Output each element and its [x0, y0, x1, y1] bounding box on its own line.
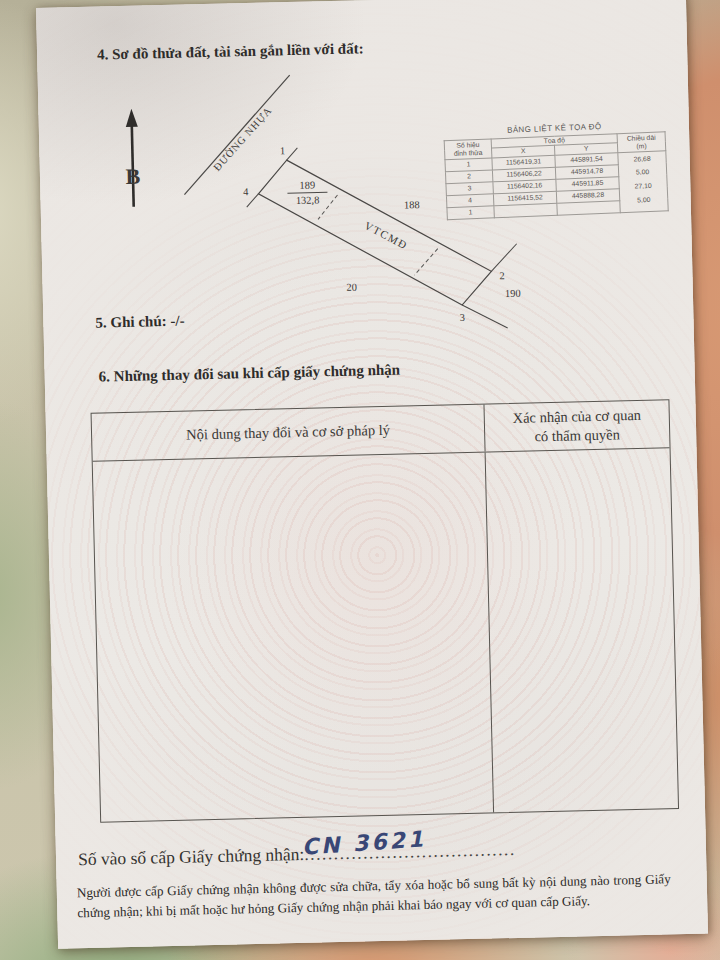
edge-length: 5,00	[620, 195, 667, 205]
vertex-3-label: 3	[460, 312, 466, 323]
vertex-id: 1	[447, 206, 494, 220]
edge-length: 26,68	[618, 154, 665, 164]
parcel-number-area: 189 132,8	[287, 179, 328, 206]
north-arrow-icon: B	[124, 109, 141, 207]
changes-table-body	[93, 448, 678, 821]
north-label: B	[125, 164, 141, 189]
section5-note: 5. Ghi chú: -/-	[95, 313, 185, 332]
road-label: ĐƯỜNG NHỰA	[211, 104, 274, 173]
coord-y	[557, 201, 620, 216]
road-line	[182, 75, 293, 195]
certificate-page: 4. Sơ đồ thửa đất, tài sản gắn liền với …	[36, 0, 708, 949]
edge-length: 5,00	[619, 168, 666, 178]
changes-col2-header-line1: Xác nhận của cơ quan	[512, 406, 641, 427]
parcel-area-label: 132,8	[296, 194, 320, 206]
changes-col2-header-line2: có thẩm quyền	[534, 425, 620, 445]
coord-x	[494, 203, 557, 218]
adjacent-parcel-bottom-label: 20	[346, 282, 357, 293]
changes-content-cell	[93, 453, 494, 822]
vertex-4-label: 4	[243, 186, 249, 197]
changes-table: Nội dung thay đổi và cơ sở pháp lý Xác n…	[91, 399, 679, 823]
adjacent-parcel-top-label: 188	[404, 199, 420, 210]
parcel-fraction-divider	[287, 192, 327, 193]
photo-of-land-certificate: 4. Sơ đồ thửa đất, tài sản gắn liền với …	[0, 0, 720, 960]
col-vertex-header: Số hiệu đỉnh thửa	[444, 139, 492, 160]
vertex-1-label: 1	[280, 145, 286, 156]
changes-confirmation-cell	[486, 448, 678, 812]
coordinate-table: Số hiệu đỉnh thửa Tọa độ Chiều dài (m) X…	[444, 131, 669, 220]
coordinate-table-block: BẢNG LIỆT KÊ TỌA ĐỘ Số hiệu đỉnh thửa Tọ…	[443, 119, 669, 220]
edge-lengths-cell: 26,68 5,00 27,10 5,00	[618, 151, 668, 213]
changes-col1-header: Nội dung thay đổi và cơ sở pháp lý	[186, 422, 390, 444]
edge-length: 27,10	[620, 181, 667, 191]
adjacent-parcel-right-label: 190	[505, 288, 521, 299]
col-length-header: Chiều dài (m)	[617, 132, 666, 153]
registry-label: Số vào sổ cấp Giấy chứng nhận:	[78, 844, 305, 869]
parcel-number-label: 189	[299, 179, 315, 190]
vertex-2-label: 2	[499, 270, 505, 281]
